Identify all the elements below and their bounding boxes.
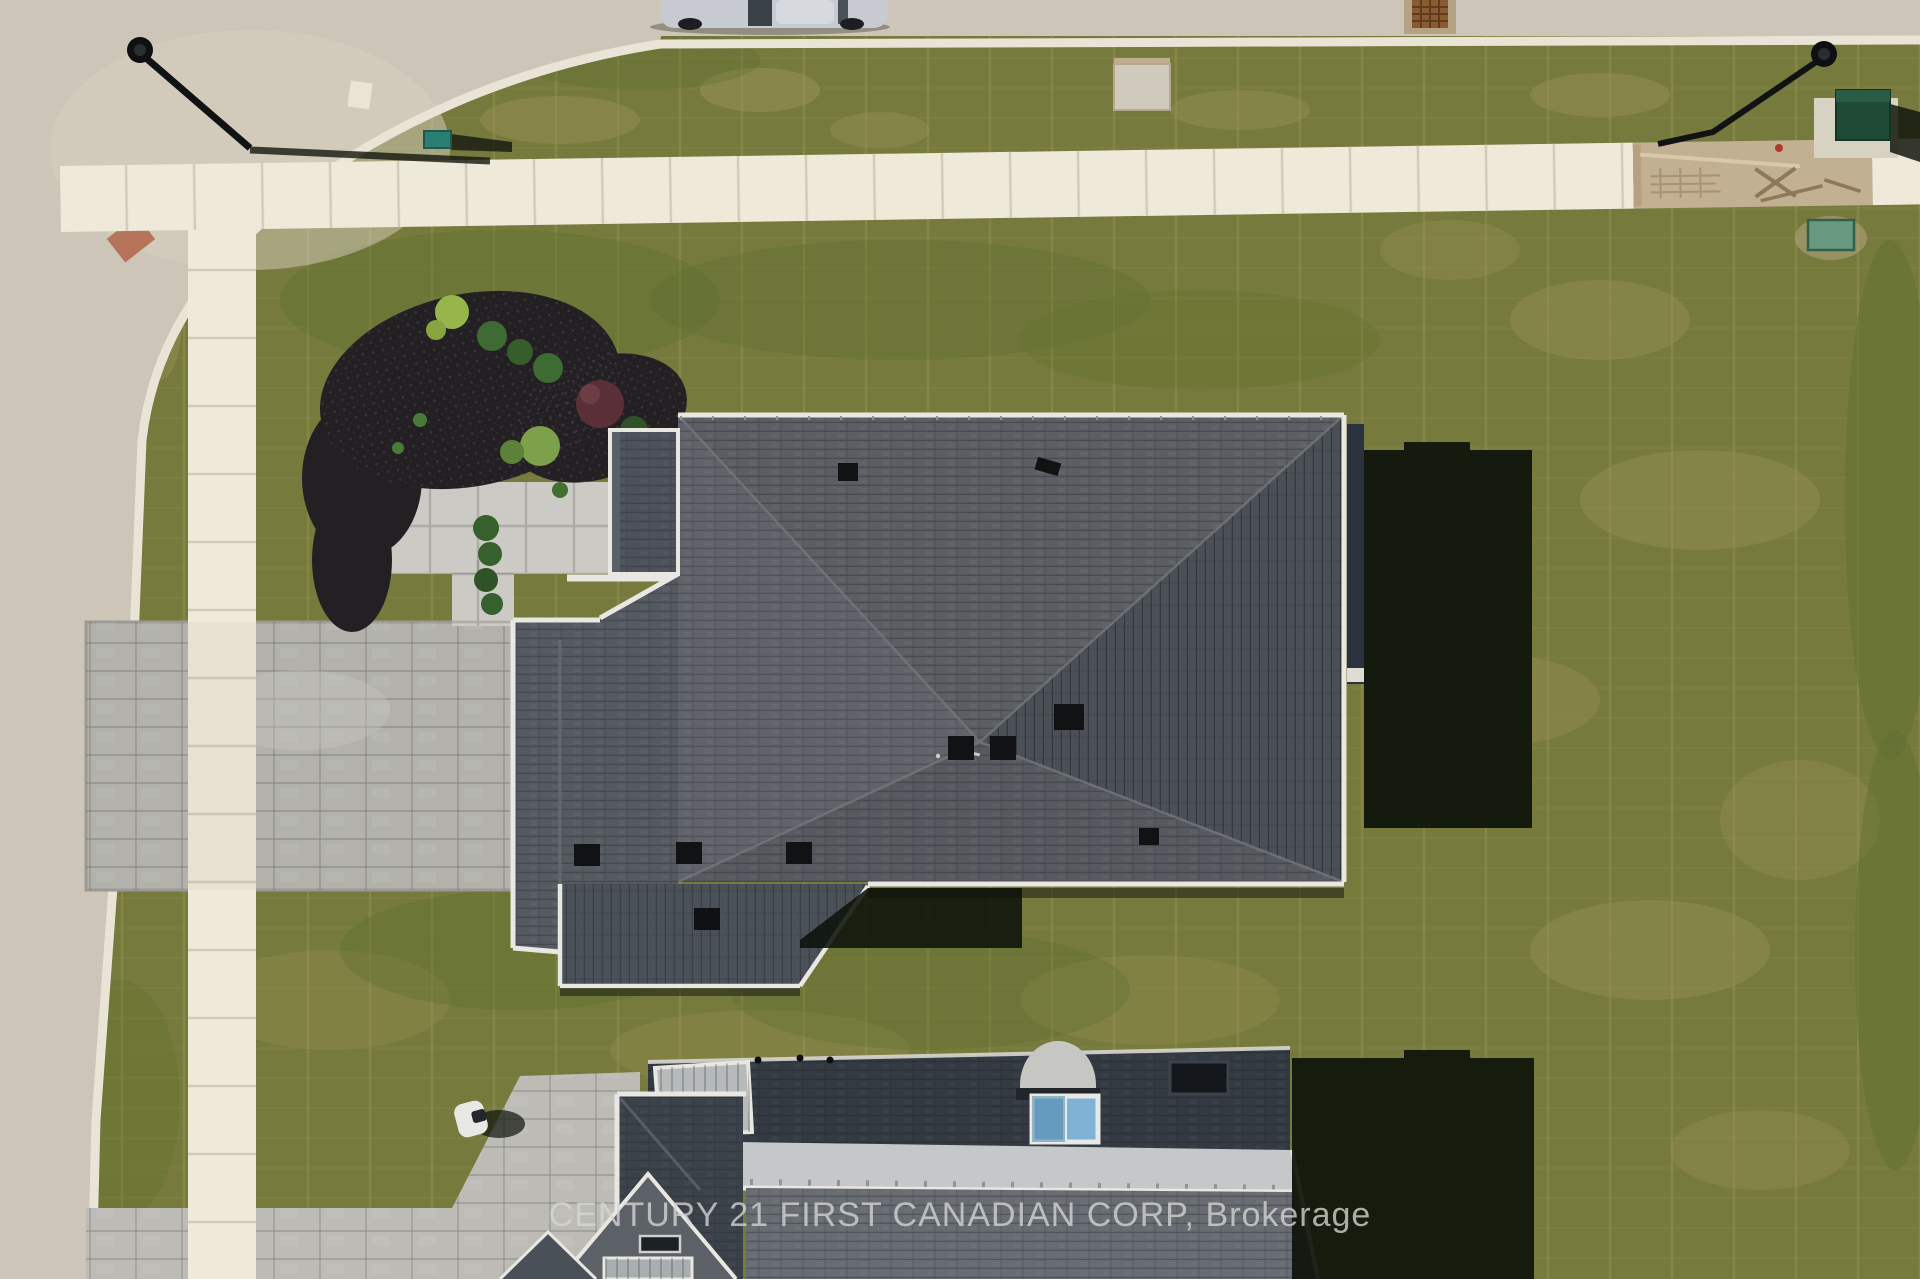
car-roof <box>776 0 834 24</box>
neighbor-house-shadow <box>1292 1050 1534 1279</box>
car-windshield <box>748 0 772 26</box>
car-wheel <box>678 18 702 30</box>
skylight-shade <box>1032 1096 1065 1142</box>
aerial-photo-canvas: CENTURY 21 FIRST CANADIAN CORP, Brokerag… <box>0 0 1920 1279</box>
brokerage-watermark: CENTURY 21 FIRST CANADIAN CORP, Brokerag… <box>549 1196 1372 1234</box>
east-wall-shade <box>1347 424 1364 684</box>
plumbing-vent <box>797 1055 804 1062</box>
shingle-texture <box>610 430 678 574</box>
transformer-shadow <box>1890 104 1920 162</box>
gable-skylight <box>640 1236 680 1252</box>
paver-texture <box>86 622 512 890</box>
concrete-pad-large <box>1114 58 1170 110</box>
aerial-photo: CENTURY 21 FIRST CANADIAN CORP, Brokerag… <box>0 0 1920 1279</box>
roof-vent <box>694 908 720 930</box>
storm-drain-grate <box>1404 0 1456 34</box>
east-wall-sill <box>1347 668 1364 682</box>
plumbing-vent <box>827 1057 834 1064</box>
lamp-lens <box>1818 48 1830 60</box>
plumbing-vent <box>755 1057 762 1064</box>
parked-car <box>650 0 890 35</box>
transformer-top <box>1836 90 1890 102</box>
car-wheel <box>840 18 864 30</box>
utility-pedestal <box>1795 216 1867 260</box>
lamp-lens <box>134 44 146 56</box>
sidewalk-dust <box>188 622 256 890</box>
concrete-pad-small <box>347 81 372 110</box>
red-marker <box>1775 144 1783 152</box>
metal-ribs <box>604 1258 692 1279</box>
metal-roof-band <box>740 1142 1292 1190</box>
rear-eave-shadow <box>560 988 800 996</box>
dark-skylight <box>1170 1062 1228 1094</box>
